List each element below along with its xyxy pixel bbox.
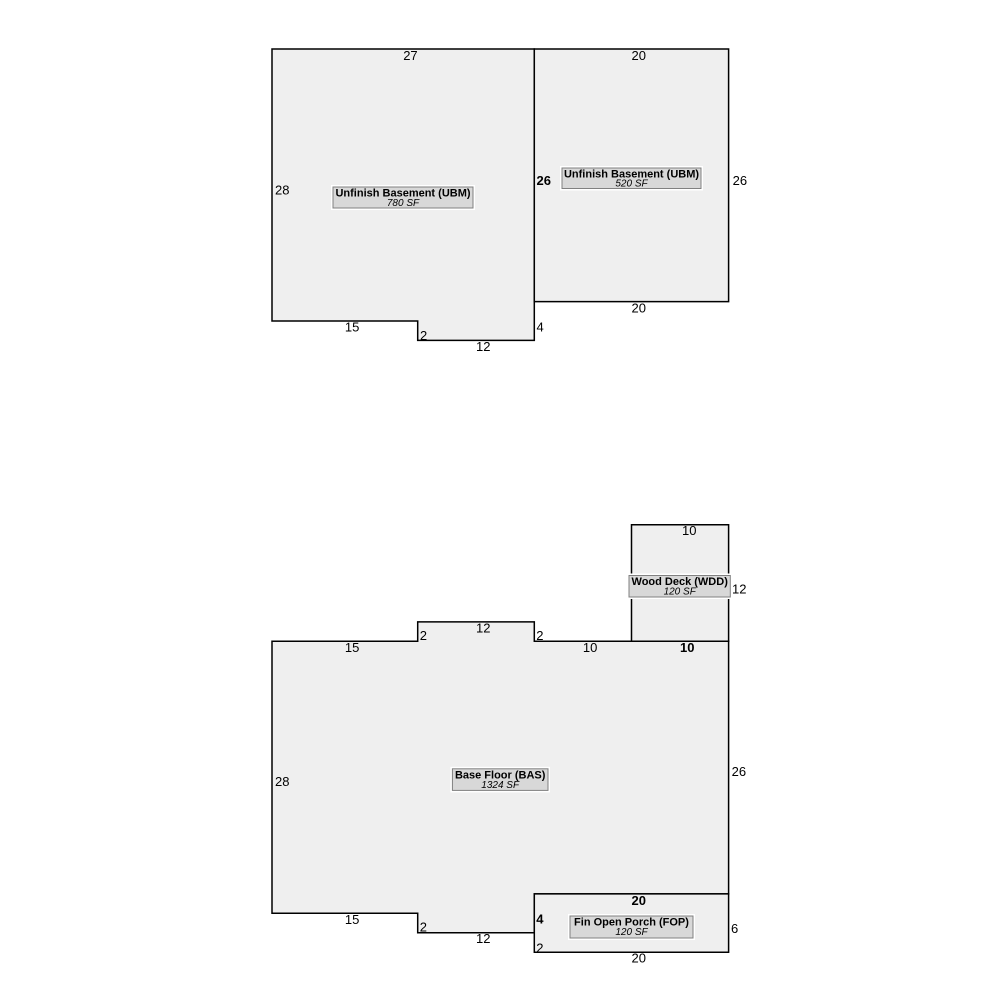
svg-text:520 SF: 520 SF <box>615 179 648 190</box>
svg-text:10: 10 <box>583 640 597 655</box>
svg-text:2: 2 <box>420 920 427 935</box>
svg-text:4: 4 <box>537 320 544 335</box>
svg-text:28: 28 <box>275 183 289 198</box>
svg-text:15: 15 <box>345 912 359 927</box>
svg-text:12: 12 <box>476 931 490 946</box>
svg-text:20: 20 <box>632 893 646 908</box>
svg-text:15: 15 <box>345 640 359 655</box>
svg-text:2: 2 <box>536 628 543 643</box>
svg-text:2: 2 <box>420 628 427 643</box>
svg-text:2: 2 <box>420 328 427 343</box>
svg-text:12: 12 <box>476 339 490 354</box>
svg-text:4: 4 <box>536 911 544 926</box>
svg-text:2: 2 <box>536 941 543 956</box>
svg-text:28: 28 <box>275 774 289 789</box>
svg-text:20: 20 <box>632 951 646 966</box>
svg-text:15: 15 <box>345 320 359 335</box>
svg-text:27: 27 <box>403 48 417 63</box>
svg-text:10: 10 <box>682 523 696 538</box>
svg-text:10: 10 <box>680 640 694 655</box>
svg-text:120 SF: 120 SF <box>664 587 697 598</box>
svg-text:1324 SF: 1324 SF <box>481 780 520 791</box>
svg-text:780 SF: 780 SF <box>387 198 420 209</box>
svg-text:20: 20 <box>632 300 646 315</box>
svg-text:26: 26 <box>733 173 747 188</box>
svg-text:12: 12 <box>732 582 746 597</box>
svg-text:26: 26 <box>732 764 746 779</box>
svg-text:20: 20 <box>632 48 646 63</box>
svg-text:120 SF: 120 SF <box>615 927 648 938</box>
svg-text:6: 6 <box>731 921 738 936</box>
svg-text:26: 26 <box>537 173 551 188</box>
svg-text:12: 12 <box>476 620 490 635</box>
